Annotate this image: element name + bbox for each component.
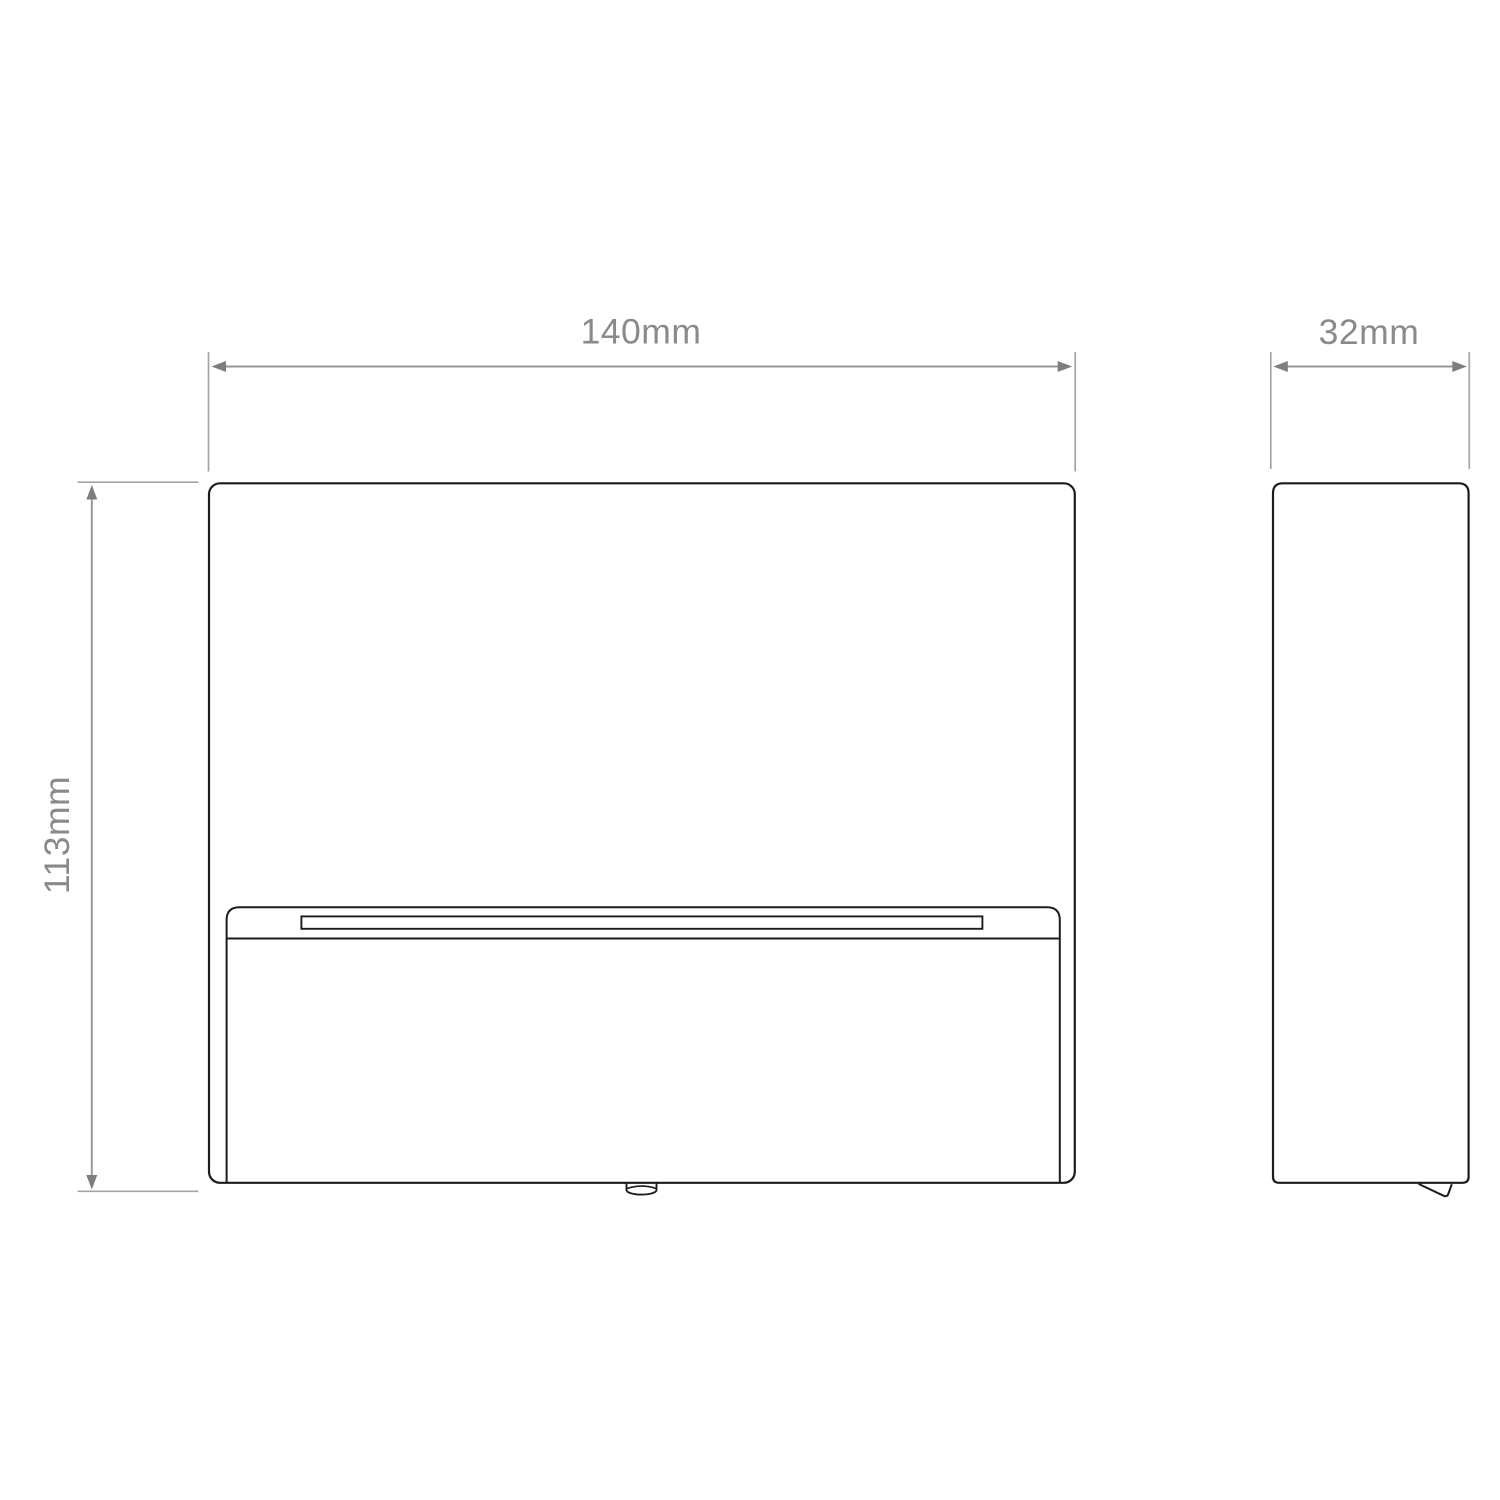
- svg-text:113mm: 113mm: [37, 776, 77, 894]
- svg-text:32mm: 32mm: [1319, 312, 1420, 352]
- svg-text:140mm: 140mm: [581, 312, 702, 352]
